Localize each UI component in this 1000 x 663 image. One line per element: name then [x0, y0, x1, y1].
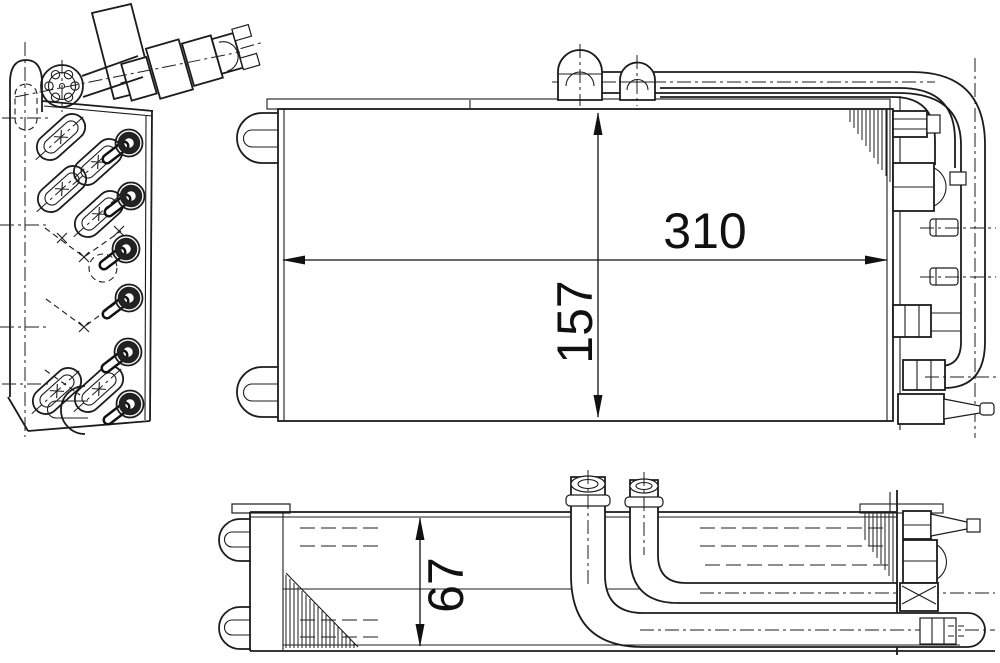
- dim-width-label: 310: [663, 203, 746, 259]
- core-outline: [278, 109, 893, 421]
- fin-hatch: [850, 110, 890, 182]
- top-pipe-stubs: [558, 44, 655, 106]
- dim-height-label: 157: [547, 280, 603, 363]
- coiled-tube-ends: [104, 130, 145, 421]
- dimension-height: 157: [547, 112, 603, 418]
- dimension-width: 310: [282, 203, 888, 265]
- technical-drawing-canvas: 310 157: [0, 0, 1000, 663]
- heat-exchanger-drawing: 310 157: [0, 0, 1000, 663]
- left-side-view: [0, 4, 272, 437]
- front-view: 310 157: [237, 44, 1000, 438]
- mounting-clips-bottom: [219, 519, 251, 649]
- dimension-depth: 67: [416, 517, 475, 647]
- mounting-clips: [237, 113, 278, 417]
- bottom-view: 67: [219, 470, 995, 655]
- fin-hatch-right: [865, 512, 893, 582]
- dim-depth-label: 67: [418, 557, 474, 613]
- right-fittings: [893, 111, 1000, 424]
